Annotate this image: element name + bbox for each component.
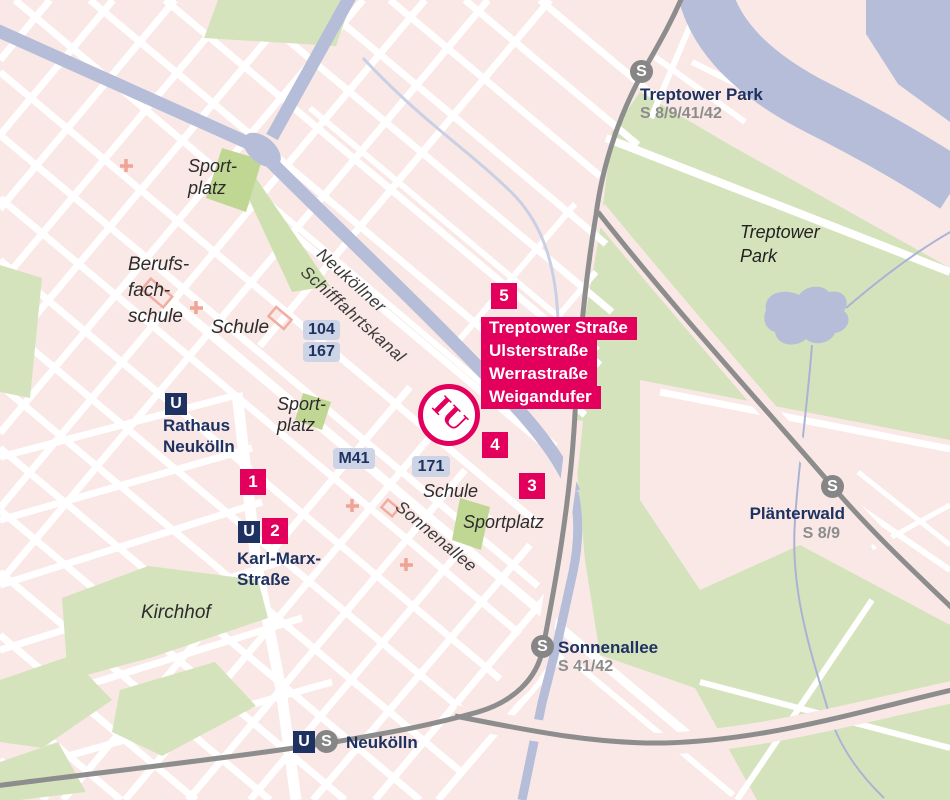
station-treptower-park: Treptower Park: [640, 84, 763, 105]
station-plaenterwald: Plänterwald: [700, 503, 845, 524]
schule-west-label: Schule: [211, 317, 269, 339]
station-treptower-park-lines: S 8/9/41/42: [640, 105, 722, 123]
campus-marker-3: 3: [519, 473, 545, 499]
campus-marker-1: 1: [240, 469, 266, 495]
s-bahn-icon-sonnenallee: S: [531, 635, 554, 658]
iu-logo: IU: [418, 384, 480, 446]
address-line-3: Werrastraße: [481, 363, 597, 386]
sportplatz-north-label: Sport- platz: [188, 155, 237, 199]
city-map: Neuköllner Schifffahrtskanal Sonnenallee…: [0, 0, 950, 800]
station-rathaus-neukoelln: Rathaus Neukölln: [163, 415, 235, 457]
campus-marker-4: 4: [482, 432, 508, 458]
s-bahn-icon-plaenterwald: S: [821, 475, 844, 498]
address-line-1: Treptower Straße: [481, 317, 637, 340]
station-sonnenallee-lines: S 41/42: [558, 658, 613, 676]
campus-address-box: Treptower Straße Ulsterstraße Werrastraß…: [481, 317, 637, 409]
address-line-4: Weigandufer: [481, 386, 601, 409]
bus-route-171-badge: 171: [412, 456, 450, 477]
s-bahn-icon-treptower-park: S: [630, 60, 653, 83]
kirchhof-label: Kirchhof: [141, 602, 211, 624]
sportplatz-se-label: Sportplatz: [463, 511, 544, 533]
bus-stop-104-167: 104 167: [303, 320, 340, 362]
address-line-2: Ulsterstraße: [481, 340, 597, 363]
station-karl-marx-strasse: Karl-Marx- Straße: [237, 548, 321, 590]
treptower-park-area-label: Treptower Park: [740, 220, 820, 268]
campus-marker-5: 5: [491, 283, 517, 309]
schule-south-label: Schule: [423, 480, 478, 502]
station-sonnenallee: Sonnenallee: [558, 637, 658, 658]
river-corner: [866, 0, 950, 122]
station-neukoelln: Neukölln: [346, 732, 418, 753]
iu-logo-text: IU: [425, 391, 472, 438]
bus-route-m41-badge: M41: [333, 448, 375, 469]
campus-marker-2: 2: [262, 518, 288, 544]
bus-route-167-badge: 167: [303, 342, 340, 362]
berufsfachschule-label: Berufs- fach- schule: [128, 252, 189, 330]
station-plaenterwald-lines: S 8/9: [700, 525, 840, 543]
u-bahn-icon-rathaus-neukoelln: U: [165, 393, 187, 415]
bus-route-104-badge: 104: [303, 320, 340, 340]
u-bahn-icon-neukoelln: U: [293, 731, 315, 753]
sportplatz-mid-label: Sport- platz: [277, 394, 326, 436]
u-bahn-icon-karl-marx-strasse: U: [238, 521, 260, 543]
s-bahn-icon-neukoelln: S: [315, 730, 338, 753]
